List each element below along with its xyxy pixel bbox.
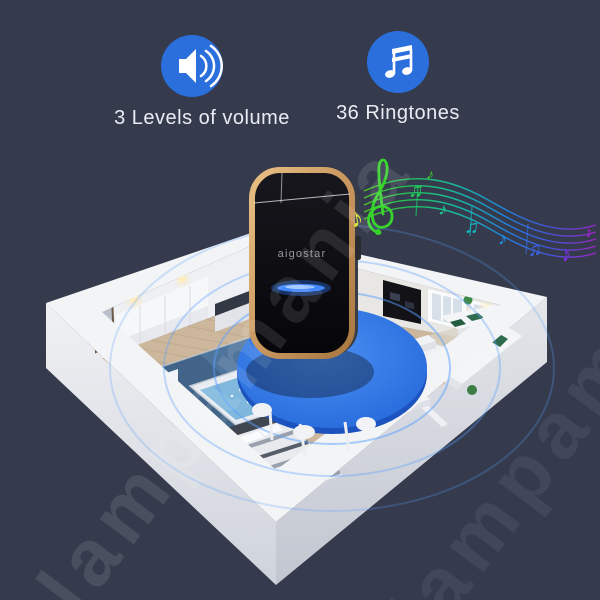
music-note: ♫	[463, 216, 480, 239]
feature-ringtones-label: 36 Ringtones	[336, 102, 460, 124]
feature-volume-label: 3 Levels of volume	[114, 107, 290, 129]
scene-canvas: 3 Levels of volume 36 Ringtones	[0, 0, 600, 600]
plant-3	[467, 385, 477, 395]
music-note: ♫	[527, 239, 543, 261]
product-image: 3 Levels of volume 36 Ringtones	[0, 0, 600, 600]
ringtones-icon-circle	[367, 31, 429, 93]
